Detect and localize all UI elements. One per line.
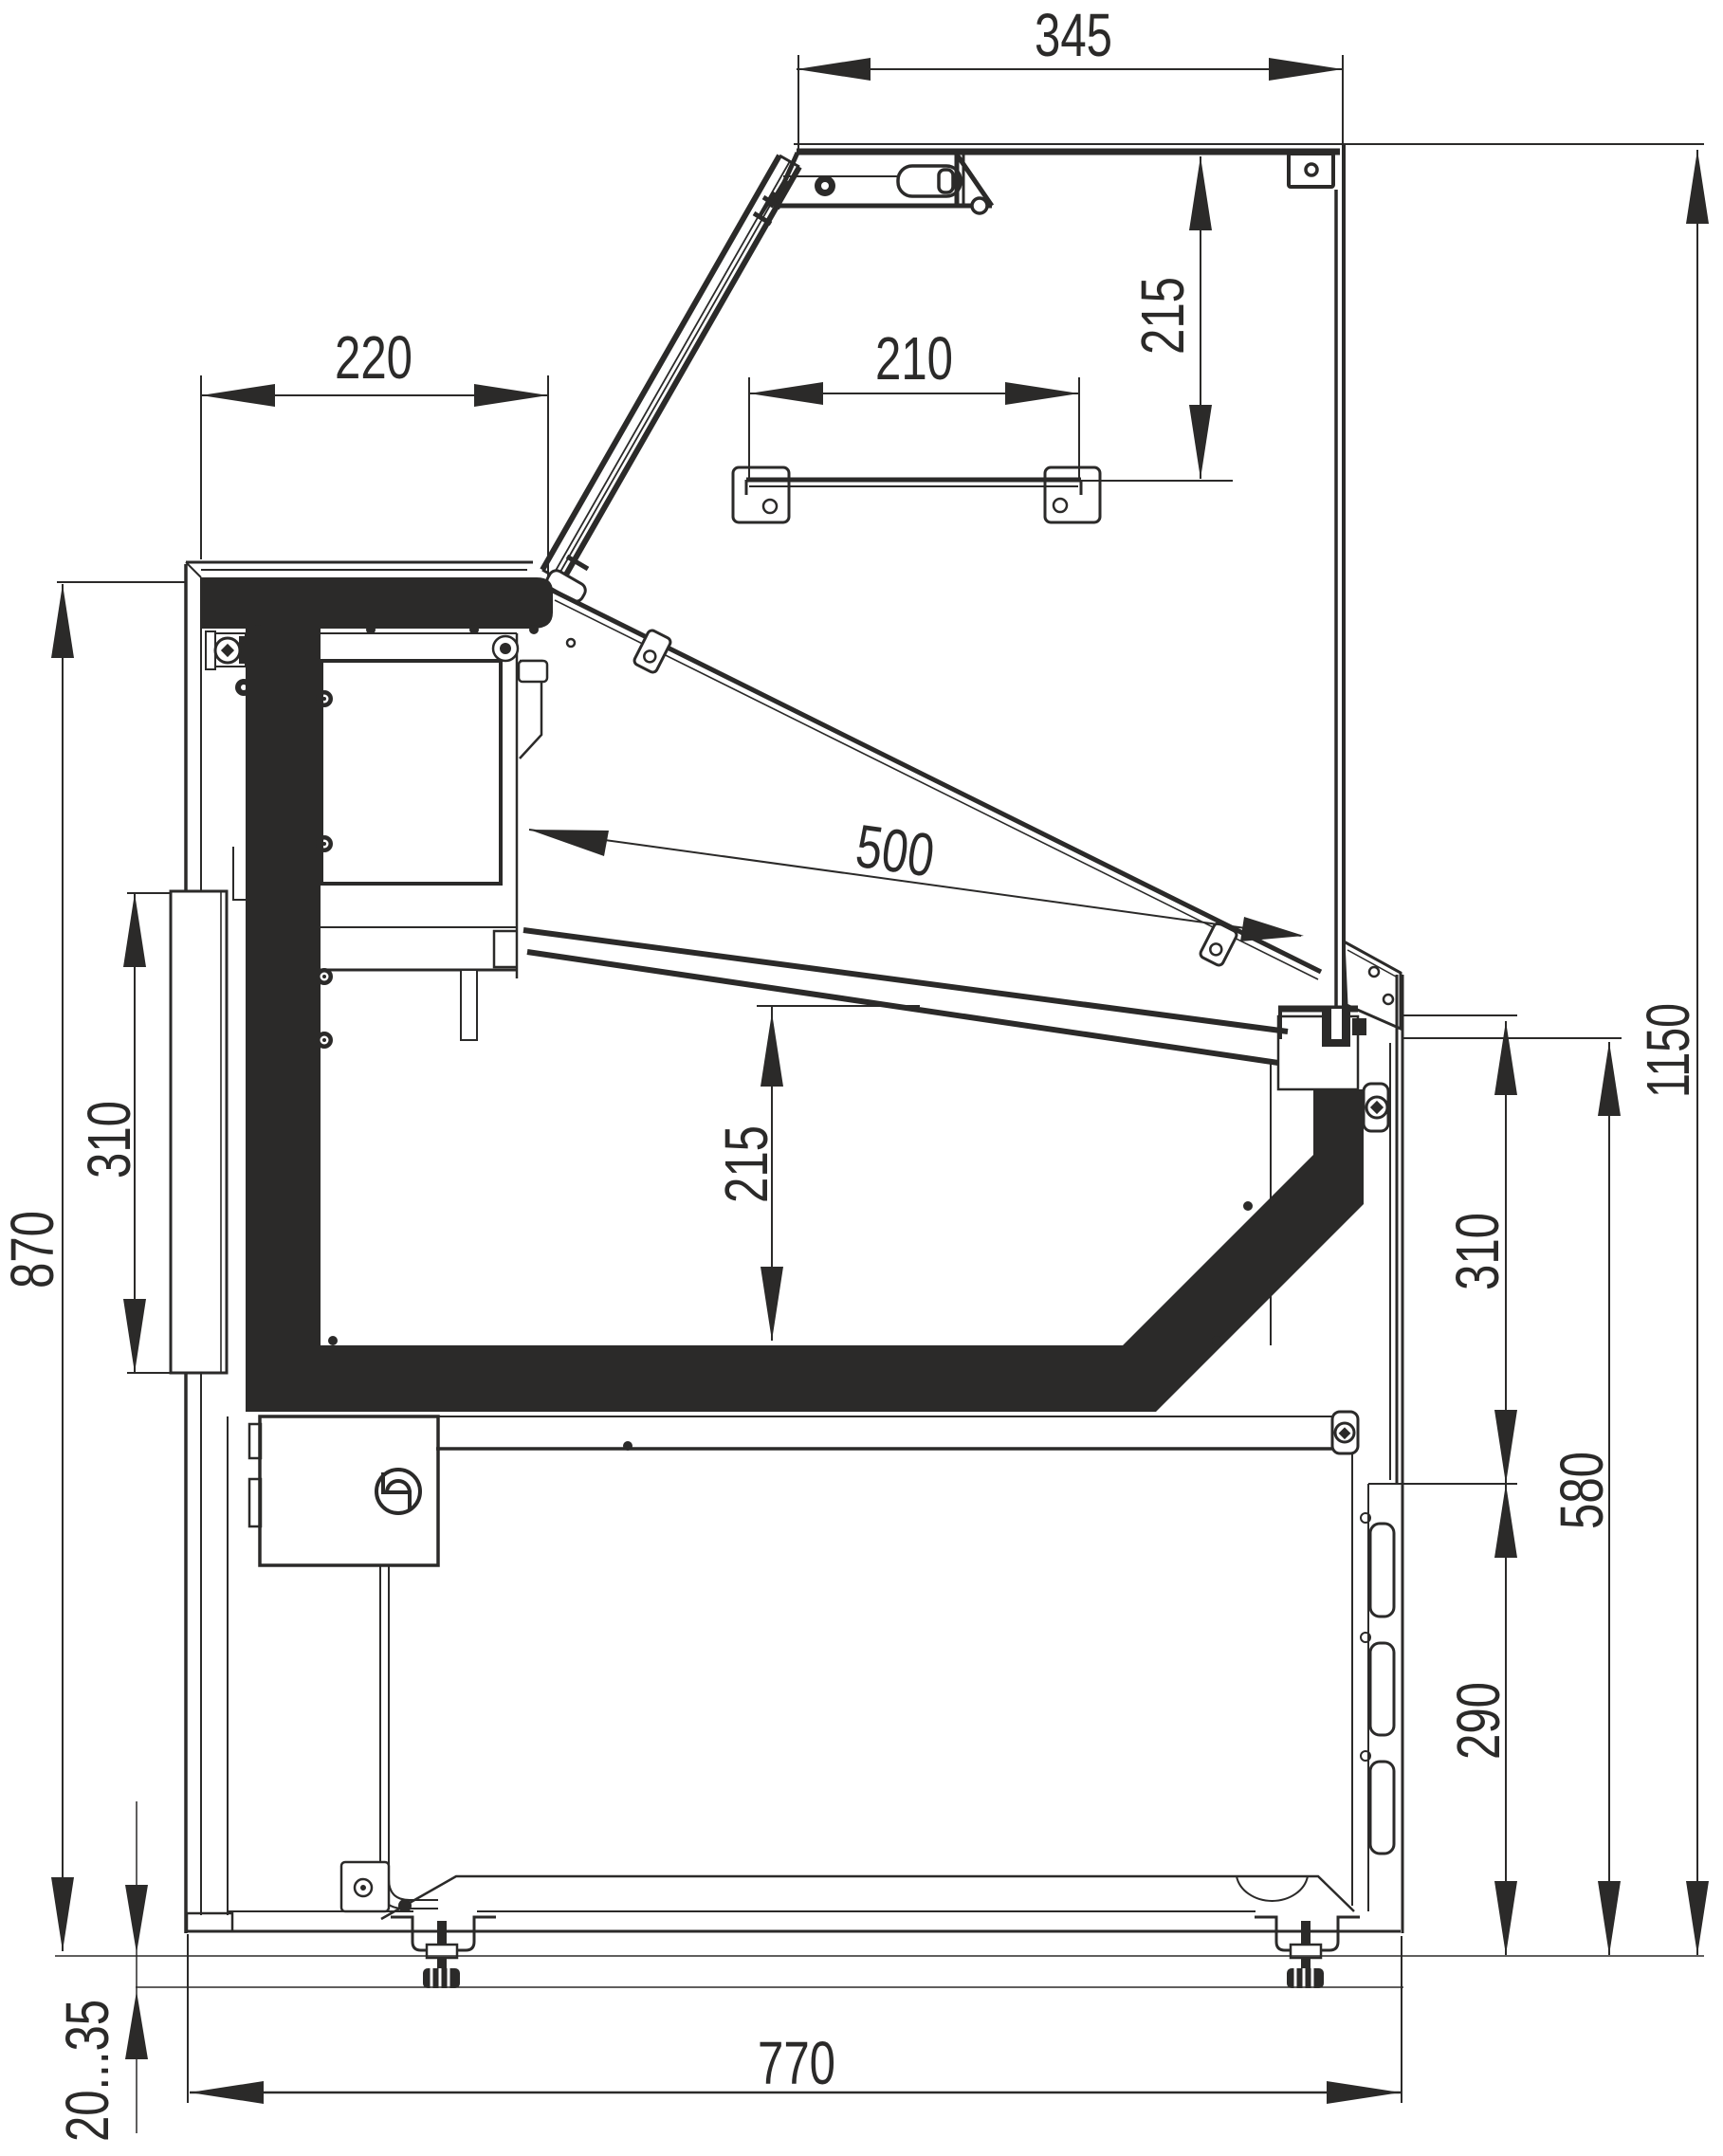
- svg-text:870: 870: [0, 1211, 66, 1288]
- svg-text:1150: 1150: [1634, 1003, 1702, 1098]
- svg-text:310: 310: [1443, 1213, 1512, 1290]
- svg-text:20...35: 20...35: [53, 2000, 121, 2142]
- svg-text:770: 770: [758, 2029, 835, 2097]
- svg-text:290: 290: [1444, 1682, 1512, 1760]
- svg-text:210: 210: [875, 324, 953, 393]
- svg-text:215: 215: [712, 1125, 780, 1203]
- svg-text:345: 345: [1035, 1, 1112, 69]
- svg-text:580: 580: [1548, 1452, 1616, 1529]
- svg-text:310: 310: [75, 1101, 143, 1178]
- svg-text:215: 215: [1128, 277, 1197, 355]
- svg-text:500: 500: [852, 812, 938, 890]
- svg-text:220: 220: [335, 323, 412, 392]
